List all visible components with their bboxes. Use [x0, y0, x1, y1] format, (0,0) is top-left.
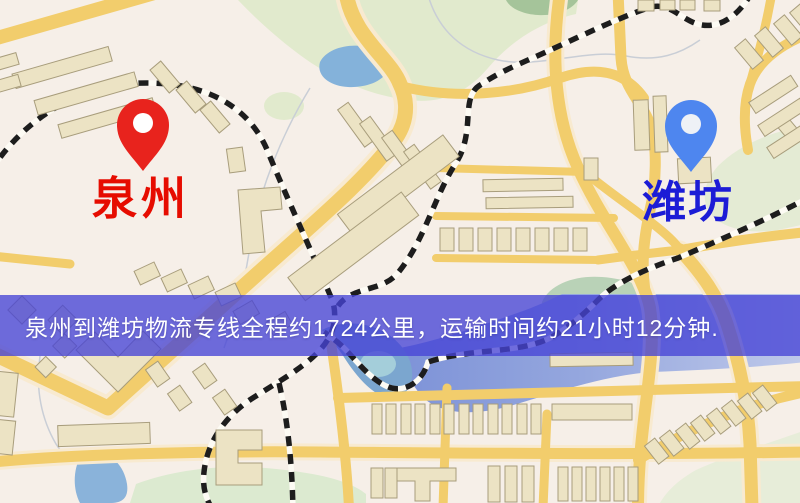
route-info-banner: 泉州到潍坊物流专线全程约1724公里，运输时间约21小时12分钟.: [0, 295, 800, 356]
route-info-text: 泉州到潍坊物流专线全程约1724公里，运输时间约21小时12分钟.: [0, 309, 719, 343]
map-background: [0, 0, 800, 503]
destination-city-label: 潍坊: [642, 181, 734, 225]
logistics-route-map: 泉州 潍坊 泉州到潍坊物流专线全程约1724公里，运输时间约21小时12分钟.: [0, 0, 800, 503]
origin-city-label: 泉州: [92, 176, 190, 221]
